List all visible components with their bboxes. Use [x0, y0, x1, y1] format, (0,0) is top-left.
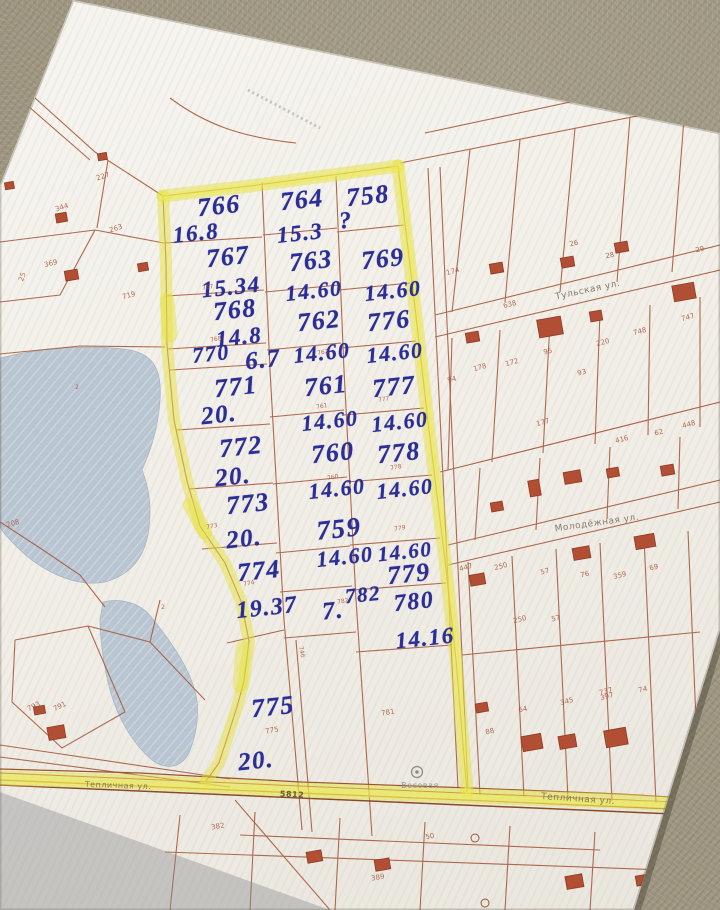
handwritten-plot-number: ? — [338, 208, 354, 233]
printed-parcel-number: 747 — [681, 313, 696, 323]
printed-parcel-number: 719 — [122, 291, 137, 301]
printed-parcel-number: 263 — [109, 224, 124, 235]
handwritten-plot-number: 14.16 — [394, 623, 455, 652]
printed-parcel-number: 778 — [390, 464, 402, 472]
handwritten-plot-number: 766 — [196, 191, 242, 221]
handwritten-plot-number: 771 — [213, 372, 259, 402]
handwritten-plot-number: 776 — [366, 306, 412, 336]
handwritten-plot-number: 761 — [303, 371, 349, 401]
handwritten-plot-number: 770 — [191, 341, 231, 367]
printed-parcel-number: 389 — [371, 873, 385, 882]
printed-parcel-number: 775 — [265, 726, 279, 735]
street-label: 5812 — [280, 790, 305, 799]
handwritten-plot-number: 15.3 — [276, 219, 324, 247]
handwritten-plot-number: 20. — [237, 747, 275, 776]
handwritten-plot-number: 20. — [214, 463, 252, 492]
handwritten-plot-number: 779 — [386, 559, 432, 589]
printed-parcel-number: 773 — [206, 523, 218, 531]
printed-parcel-number: 174 — [446, 267, 461, 277]
printed-parcel-number: 779 — [394, 525, 406, 533]
printed-parcel-number: 50 — [425, 833, 435, 841]
handwritten-plot-number: 773 — [225, 489, 271, 519]
printed-parcel-number: 344 — [55, 203, 70, 214]
printed-parcel-number: 29 — [695, 246, 705, 255]
handwritten-plot-number: 760 — [310, 438, 356, 468]
handwritten-plot-number: 782 — [344, 583, 382, 608]
street-label: Молодёжная ул. — [554, 514, 639, 535]
printed-parcel-number: 28 — [605, 252, 615, 261]
printed-parcel-number: 793 — [26, 701, 41, 713]
printed-parcel-number: 220 — [596, 338, 611, 348]
printed-parcel-number: 178 — [473, 363, 488, 373]
photo-scene: 76616.876715.3476814.87706.777120.77220.… — [0, 0, 720, 910]
street-label: Весовая — [401, 782, 439, 790]
handwritten-plot-number: 19.37 — [235, 593, 299, 623]
handwritten-plot-number: 14.60 — [364, 277, 423, 305]
printed-parcel-number: 69 — [649, 564, 659, 573]
street-label: Тульская ул. — [555, 280, 621, 303]
printed-parcel-number: 2 — [161, 605, 165, 611]
printed-parcel-number: 345 — [560, 697, 575, 707]
printed-parcel-number: 227 — [96, 172, 111, 183]
map-paper-sheet: 76616.876715.3476814.87706.777120.77220.… — [0, 0, 720, 910]
printed-parcel-number: 62 — [654, 429, 664, 438]
handwritten-plot-number: 772 — [218, 432, 264, 462]
printed-parcel-number: 88 — [485, 728, 495, 737]
handwritten-plot-number: 20. — [225, 525, 263, 554]
printed-parcel-number: 208 — [6, 519, 21, 529]
handwritten-plot-number: 780 — [393, 588, 436, 616]
printed-parcel-number: 791 — [52, 701, 67, 713]
printed-parcel-number: 359 — [613, 571, 628, 581]
printed-parcel-number: 250 — [513, 615, 528, 625]
printed-parcel-number: 447 — [459, 563, 474, 573]
printed-parcel-number: 369 — [44, 259, 59, 269]
handwritten-plot-number: 767 — [205, 242, 251, 272]
handwritten-plot-number: 764 — [279, 185, 325, 215]
handwritten-plot-number: 759 — [315, 513, 363, 545]
printed-parcel-number: 172 — [505, 358, 520, 368]
printed-parcel-number: 94 — [447, 376, 457, 385]
handwritten-plot-number: 14.60 — [285, 277, 344, 305]
printed-parcel-number: 250 — [494, 562, 509, 572]
handwritten-plot-number: 775 — [250, 692, 296, 722]
printed-parcel-number: 26 — [569, 240, 579, 249]
handwritten-plot-number: 14.60 — [371, 408, 430, 436]
printed-parcel-number: 382 — [211, 822, 225, 831]
printed-parcel-number: 748 — [633, 327, 648, 337]
handwritten-plot-number: 20. — [200, 401, 238, 430]
printed-parcel-number: 76 — [580, 571, 590, 580]
printed-parcel-number: 2 — [75, 385, 79, 391]
printed-parcel-number: 177 — [536, 418, 551, 428]
street-label: Тепличная ул. — [541, 793, 615, 807]
printed-parcel-number: 774 — [243, 580, 255, 588]
printed-parcel-number: 57 — [551, 615, 561, 624]
handwritten-plot-number: 768 — [212, 295, 258, 325]
handwritten-plot-number: 758 — [345, 181, 391, 211]
printed-parcel-number: 64 — [518, 706, 528, 715]
handwritten-plot-number: 769 — [360, 244, 406, 274]
map-labels-layer: 76616.876715.3476814.87706.777120.77220.… — [0, 0, 720, 910]
printed-parcel-number: 25 — [18, 272, 28, 283]
printed-parcel-number: 95 — [543, 348, 553, 357]
printed-parcel-number: 638 — [503, 300, 518, 310]
printed-parcel-number: 781 — [381, 708, 395, 717]
printed-parcel-number: 448 — [682, 420, 697, 430]
printed-parcel-number: 74 — [638, 686, 648, 695]
handwritten-plot-number: 762 — [296, 306, 342, 336]
street-label: Тепличная ул. — [85, 781, 152, 791]
printed-parcel-number: 93 — [577, 369, 587, 378]
printed-parcel-number: 416 — [615, 435, 630, 445]
handwritten-plot-number: 14.60 — [316, 543, 375, 571]
handwritten-plot-number: 14.60 — [301, 407, 360, 435]
printed-parcel-number: 777 — [378, 396, 390, 404]
handwritten-plot-number: 14.60 — [376, 475, 435, 503]
printed-parcel-number: 746 — [297, 646, 305, 658]
handwritten-plot-number: 763 — [288, 246, 334, 276]
printed-parcel-number: 57 — [540, 568, 550, 577]
handwritten-plot-number: 14.60 — [366, 339, 425, 367]
